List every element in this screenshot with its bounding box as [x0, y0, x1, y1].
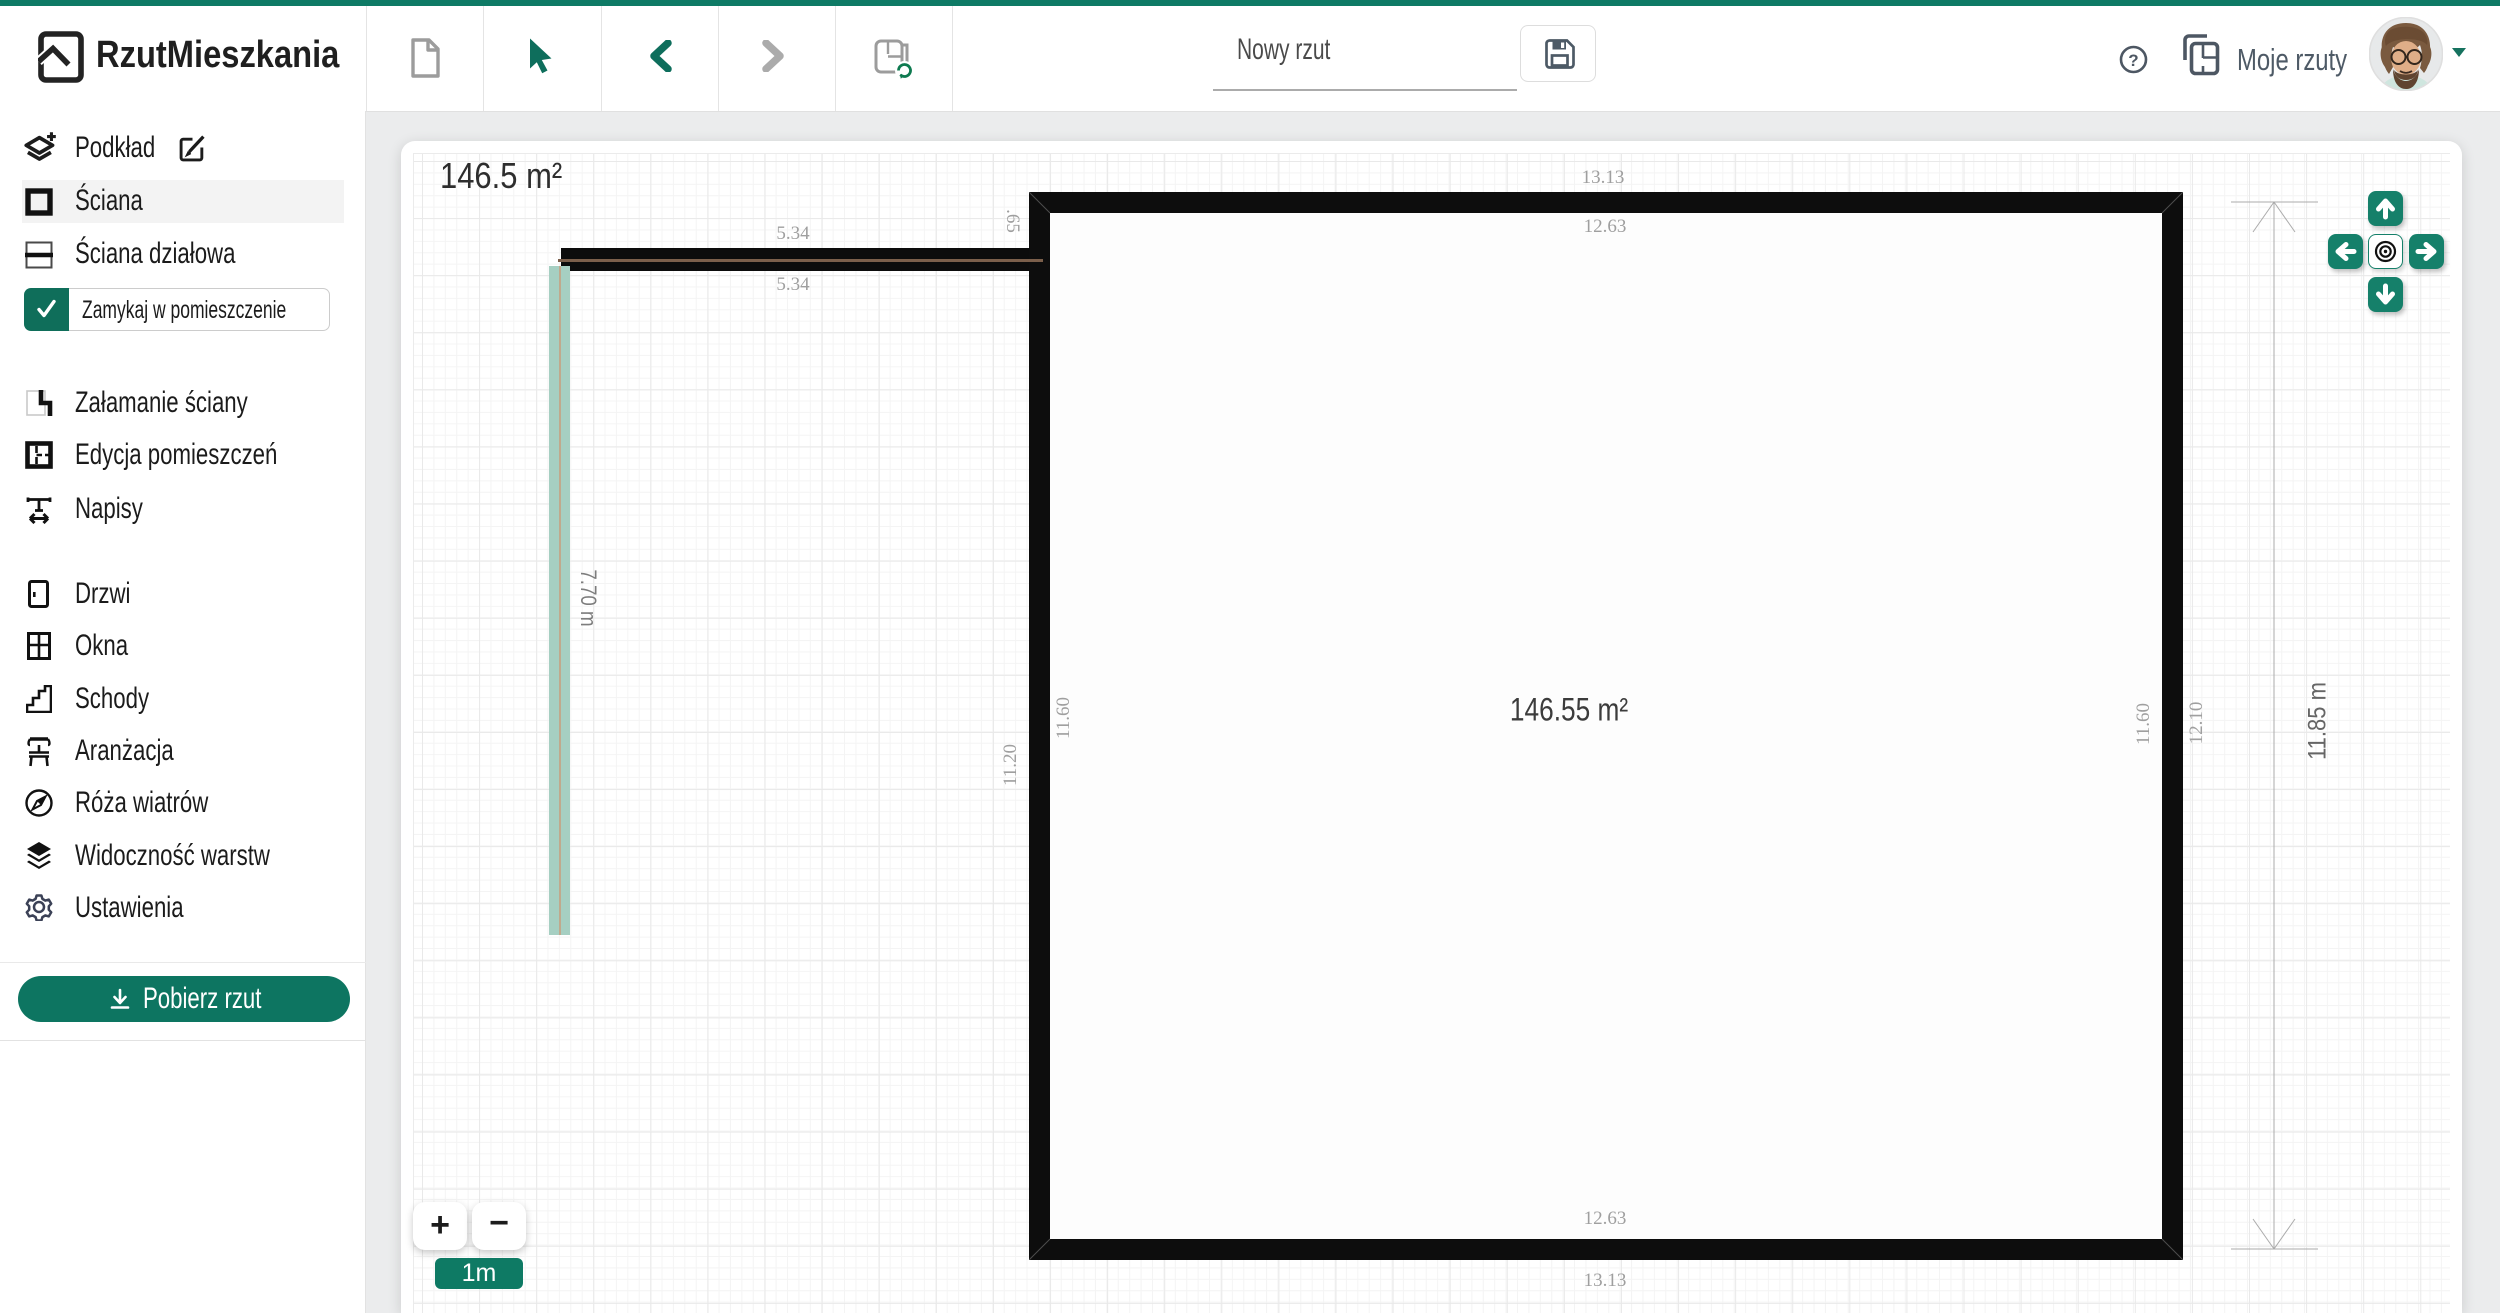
svg-text:?: ? [2128, 51, 2138, 70]
